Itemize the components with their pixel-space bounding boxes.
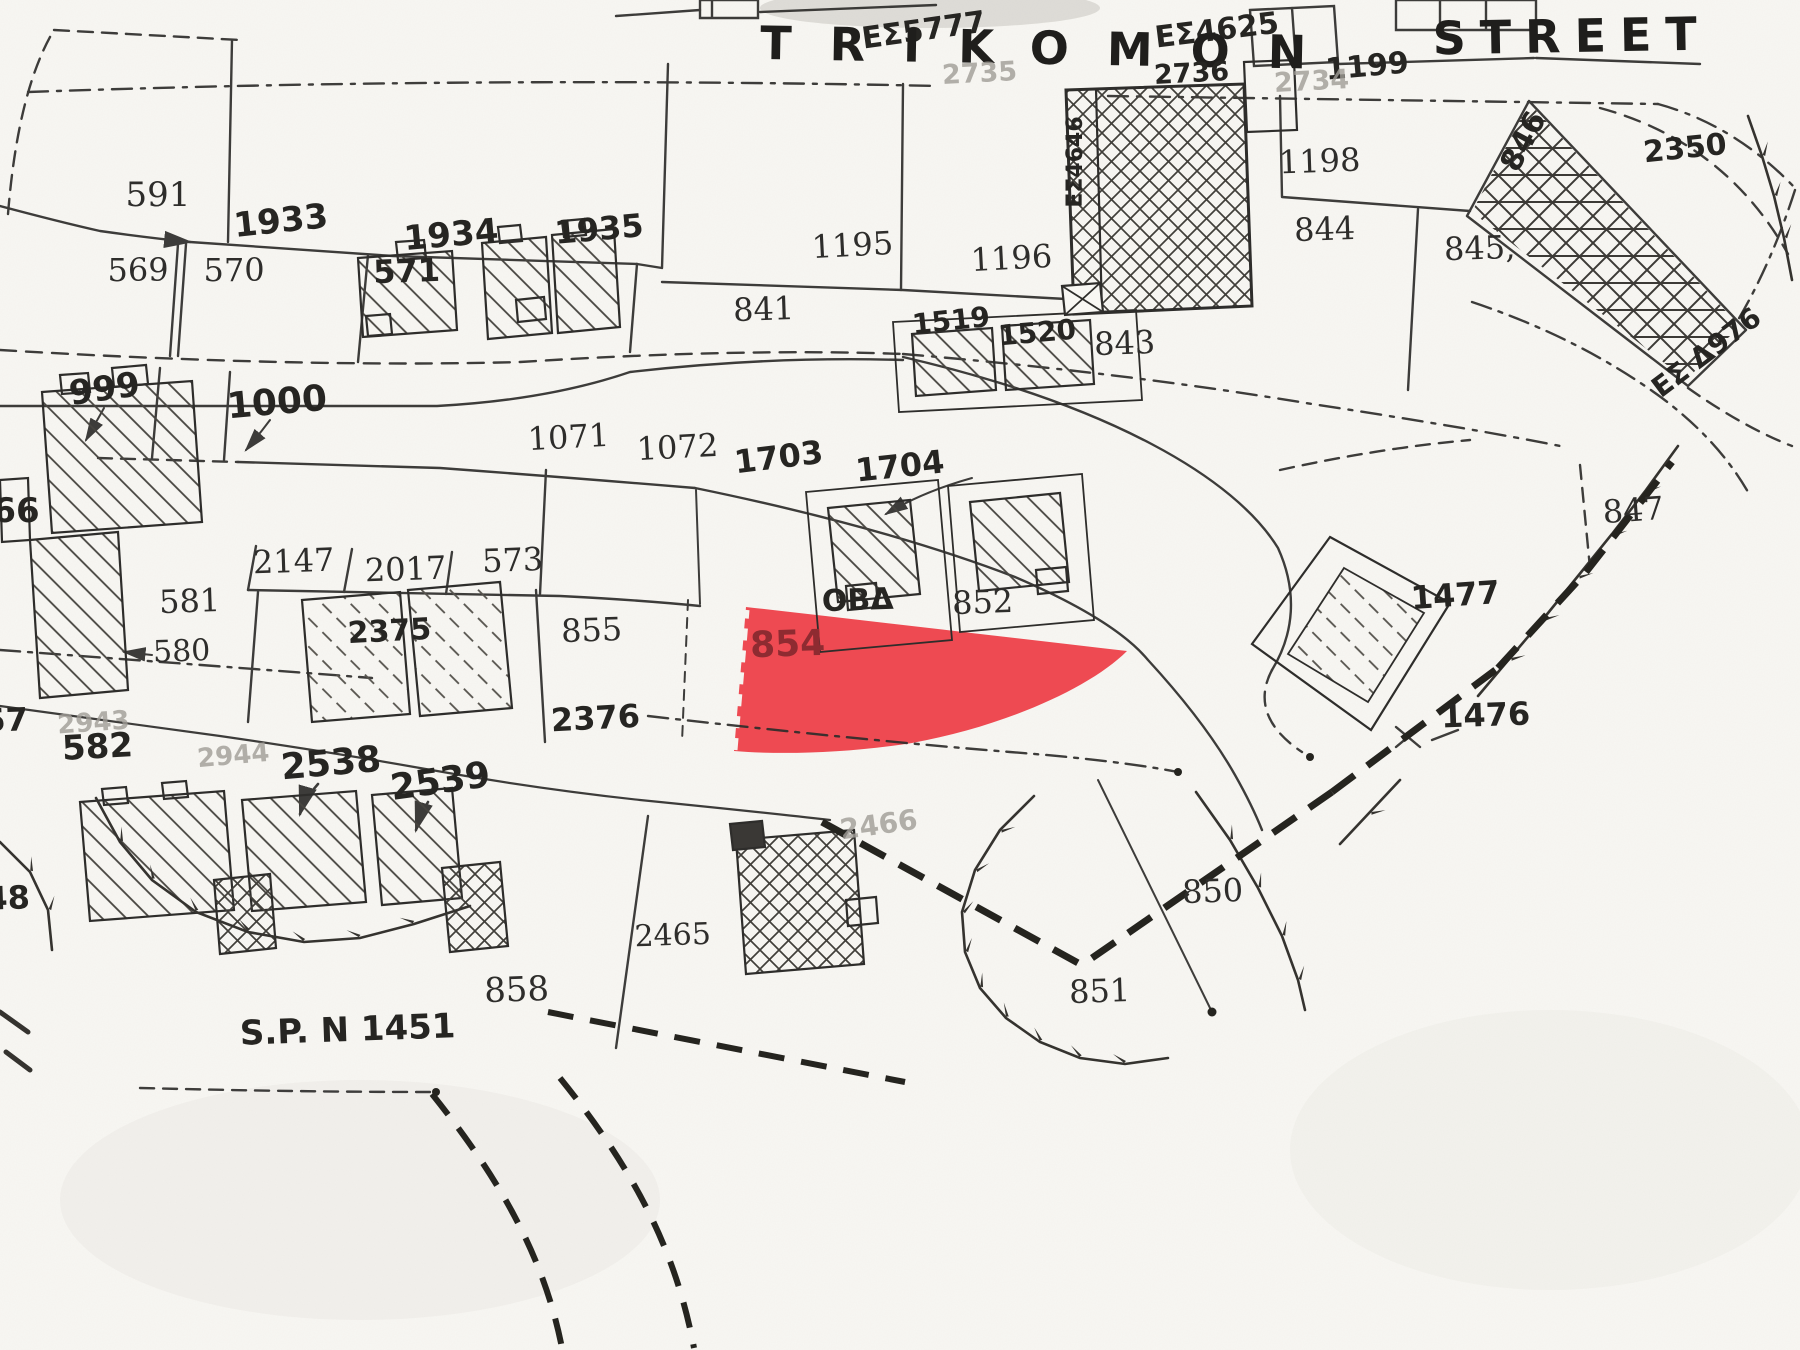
plot-label-841: 841 <box>732 289 794 329</box>
plot-label-48: 48 <box>0 878 31 918</box>
plot-label-TRIKOMON: TRIKOMON <box>760 16 1345 80</box>
plot-label-845-: 845, <box>1443 228 1516 268</box>
plot-label-1196: 1196 <box>970 237 1053 279</box>
plot-label-852: 852 <box>951 582 1013 622</box>
plot-label-847: 847 <box>1601 489 1665 531</box>
plot-label-1476: 1476 <box>1440 694 1530 735</box>
plot-label-57: 57 <box>0 700 29 740</box>
plot-label-1000: 1000 <box>225 378 328 428</box>
plot-label-573: 573 <box>481 540 543 580</box>
plot-label-ΟΒΔ: ΟΒΔ <box>821 582 895 620</box>
plot-label-591: 591 <box>126 175 191 215</box>
plot-label-1935: 1935 <box>553 206 645 252</box>
plot-label-66: 66 <box>0 491 40 531</box>
plot-label-851: 851 <box>1068 971 1130 1011</box>
plot-label-582: 582 <box>61 725 134 769</box>
plot-label-1071: 1071 <box>527 416 610 458</box>
plot-label-854: 854 <box>749 623 826 667</box>
plot-label-1195: 1195 <box>811 224 894 266</box>
plot-label-569: 569 <box>107 251 168 289</box>
plot-label-STREET: STREET <box>1432 7 1711 66</box>
plot-label-2735: 2735 <box>941 56 1018 91</box>
plot-label-ΕΣ4646: ΕΣ4646 <box>1063 116 1088 207</box>
plot-label-1198: 1198 <box>1278 141 1361 182</box>
map-canvas[interactable]: ΕΣ5777ΕΣ4625TRIKOMON1199STREET2735273627… <box>0 0 1800 1350</box>
plot-label-2944: 2944 <box>196 738 271 774</box>
plot-label-2017: 2017 <box>364 549 447 590</box>
plot-label-1072: 1072 <box>636 426 719 468</box>
plot-label-2736: 2736 <box>1153 56 1230 91</box>
plot-label-581: 581 <box>158 581 220 621</box>
plot-label-2376: 2376 <box>550 697 641 740</box>
plot-label-570: 570 <box>203 251 264 289</box>
plot-label-580: 580 <box>152 633 210 670</box>
plot-label-2734: 2734 <box>1273 64 1350 99</box>
plot-label-2147: 2147 <box>252 541 335 582</box>
plot-label-2465: 2465 <box>634 917 712 955</box>
plot-label-S-P-N-1451: S.P. N 1451 <box>239 1006 456 1054</box>
plot-label-2375: 2375 <box>347 612 432 651</box>
plot-label-858: 858 <box>483 969 549 1011</box>
plot-label-2538: 2538 <box>279 739 382 789</box>
plot-label-1520: 1520 <box>997 313 1078 353</box>
plot-label-844: 844 <box>1293 209 1355 249</box>
plot-label-571: 571 <box>373 251 441 291</box>
plot-label-855: 855 <box>560 610 622 650</box>
cadastral-map[interactable]: ΕΣ5777ΕΣ4625TRIKOMON1199STREET2735273627… <box>0 0 1800 1350</box>
plot-label-1477: 1477 <box>1409 573 1500 617</box>
plot-label-843: 843 <box>1093 323 1155 363</box>
plot-label-850: 850 <box>1181 871 1243 911</box>
